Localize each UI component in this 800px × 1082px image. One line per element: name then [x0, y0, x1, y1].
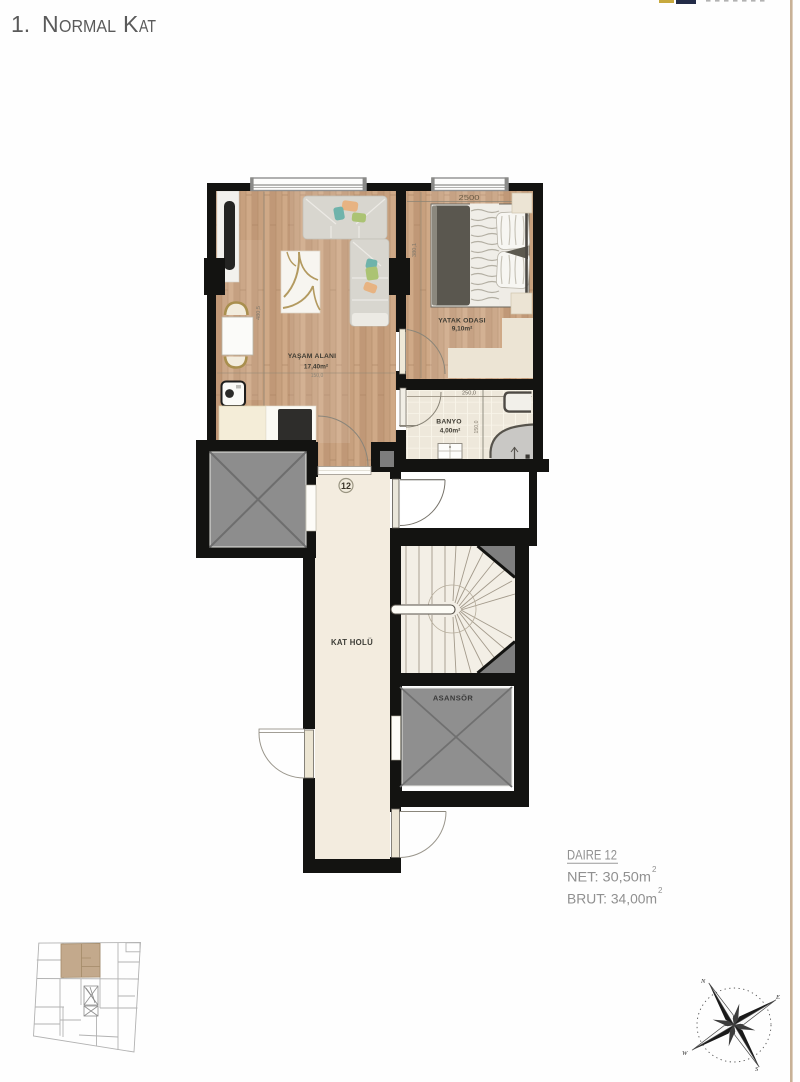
svg-text:N: N	[700, 978, 706, 985]
svg-text:KAT HOLÜ: KAT HOLÜ	[331, 638, 373, 647]
svg-text:BANYO: BANYO	[436, 419, 462, 426]
svg-text:2: 2	[652, 865, 657, 874]
svg-text:YATAK ODASI: YATAK ODASI	[438, 318, 485, 325]
svg-text:W: W	[682, 1050, 688, 1057]
svg-text:E: E	[775, 994, 780, 1001]
svg-text:YAŞAM ALANI: YAŞAM ALANI	[288, 353, 337, 360]
svg-text:380,1: 380,1	[412, 243, 418, 257]
svg-text:ORMAL: ORMAL	[59, 16, 116, 36]
svg-text:BRUT: 34,00m: BRUT: 34,00m	[567, 891, 657, 907]
svg-text:2500: 2500	[459, 195, 480, 202]
svg-text:9,10m²: 9,10m²	[452, 326, 473, 333]
svg-text:K: K	[123, 11, 139, 37]
svg-text:150,0: 150,0	[311, 373, 324, 379]
svg-text:NET: 30,50m: NET: 30,50m	[567, 869, 651, 885]
svg-text:2: 2	[658, 886, 663, 895]
svg-text:250,0: 250,0	[462, 391, 476, 397]
svg-text:ASANSÖR: ASANSÖR	[433, 694, 473, 703]
svg-text:17,40m²: 17,40m²	[304, 364, 329, 371]
svg-text:150,0: 150,0	[474, 420, 480, 433]
svg-text:1.: 1.	[11, 11, 30, 37]
svg-text:AT: AT	[139, 16, 156, 36]
svg-text:DAIRE 12: DAIRE 12	[567, 847, 617, 863]
svg-text:4,00m²: 4,00m²	[440, 428, 461, 435]
svg-text:N: N	[42, 11, 59, 37]
svg-text:480,5: 480,5	[256, 306, 262, 320]
svg-text:12: 12	[341, 481, 351, 491]
